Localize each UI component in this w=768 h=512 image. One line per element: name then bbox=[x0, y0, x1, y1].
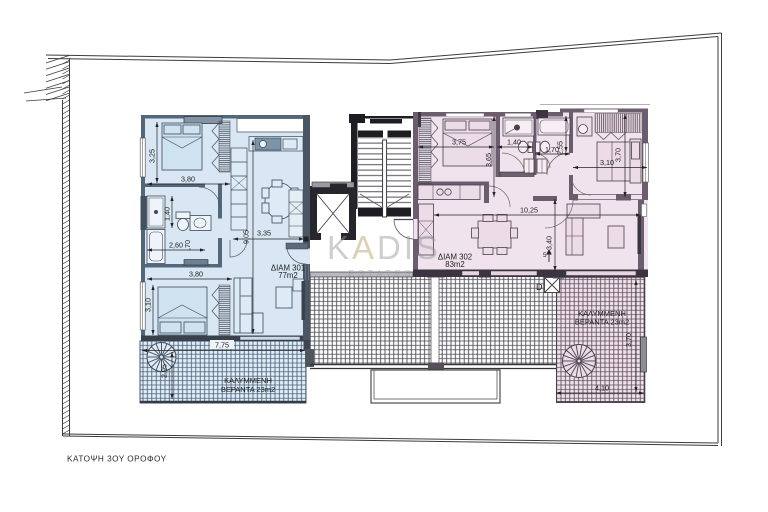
svg-text:ΚΑΤΟΨΗ 3ΟΥ ΟΡΟΦΟΥ: ΚΑΤΟΨΗ 3ΟΥ ΟΡΟΦΟΥ bbox=[67, 455, 167, 464]
svg-text:3,80: 3,80 bbox=[189, 270, 203, 279]
svg-text:3,75: 3,75 bbox=[452, 138, 466, 147]
svg-text:7,75: 7,75 bbox=[215, 341, 229, 350]
svg-text:9,05: 9,05 bbox=[242, 230, 251, 244]
svg-text:77m2: 77m2 bbox=[278, 271, 298, 280]
svg-text:3,10: 3,10 bbox=[600, 158, 614, 167]
svg-text:3,70: 3,70 bbox=[614, 148, 623, 162]
svg-text:ESTATES: ESTATES bbox=[348, 269, 414, 280]
svg-text:3,65: 3,65 bbox=[484, 153, 493, 167]
svg-text:2,60: 2,60 bbox=[169, 241, 183, 250]
svg-text:4,10: 4,10 bbox=[595, 384, 609, 393]
svg-text:D: D bbox=[536, 282, 543, 292]
svg-text:KADIS: KADIS bbox=[327, 229, 441, 266]
svg-text:ΒΕΡΑΝΤΑ 23m2: ΒΕΡΑΝΤΑ 23m2 bbox=[221, 385, 275, 394]
svg-text:3,10: 3,10 bbox=[144, 298, 153, 312]
svg-text:2,55: 2,55 bbox=[556, 141, 565, 155]
svg-text:3,35: 3,35 bbox=[257, 229, 271, 238]
svg-text:ΚΑΛΥΜΜΕΝΗ: ΚΑΛΥΜΜΕΝΗ bbox=[224, 376, 272, 385]
svg-text:3,25: 3,25 bbox=[148, 149, 157, 163]
svg-text:1,40: 1,40 bbox=[507, 138, 521, 147]
svg-text:3,80: 3,80 bbox=[181, 175, 195, 184]
svg-text:1,40: 1,40 bbox=[163, 207, 172, 221]
svg-text:ΒΕΡΑΝΤΑ 23m2: ΒΕΡΑΝΤΑ 23m2 bbox=[575, 318, 629, 327]
svg-text:3,40: 3,40 bbox=[545, 236, 554, 250]
svg-text:2,95: 2,95 bbox=[160, 364, 169, 378]
svg-text:3,70: 3,70 bbox=[624, 333, 633, 347]
svg-text:,70: ,70 bbox=[183, 240, 192, 250]
svg-text:5: 5 bbox=[543, 252, 547, 259]
svg-text:83m2: 83m2 bbox=[445, 260, 465, 269]
svg-text:10,25: 10,25 bbox=[520, 206, 538, 215]
